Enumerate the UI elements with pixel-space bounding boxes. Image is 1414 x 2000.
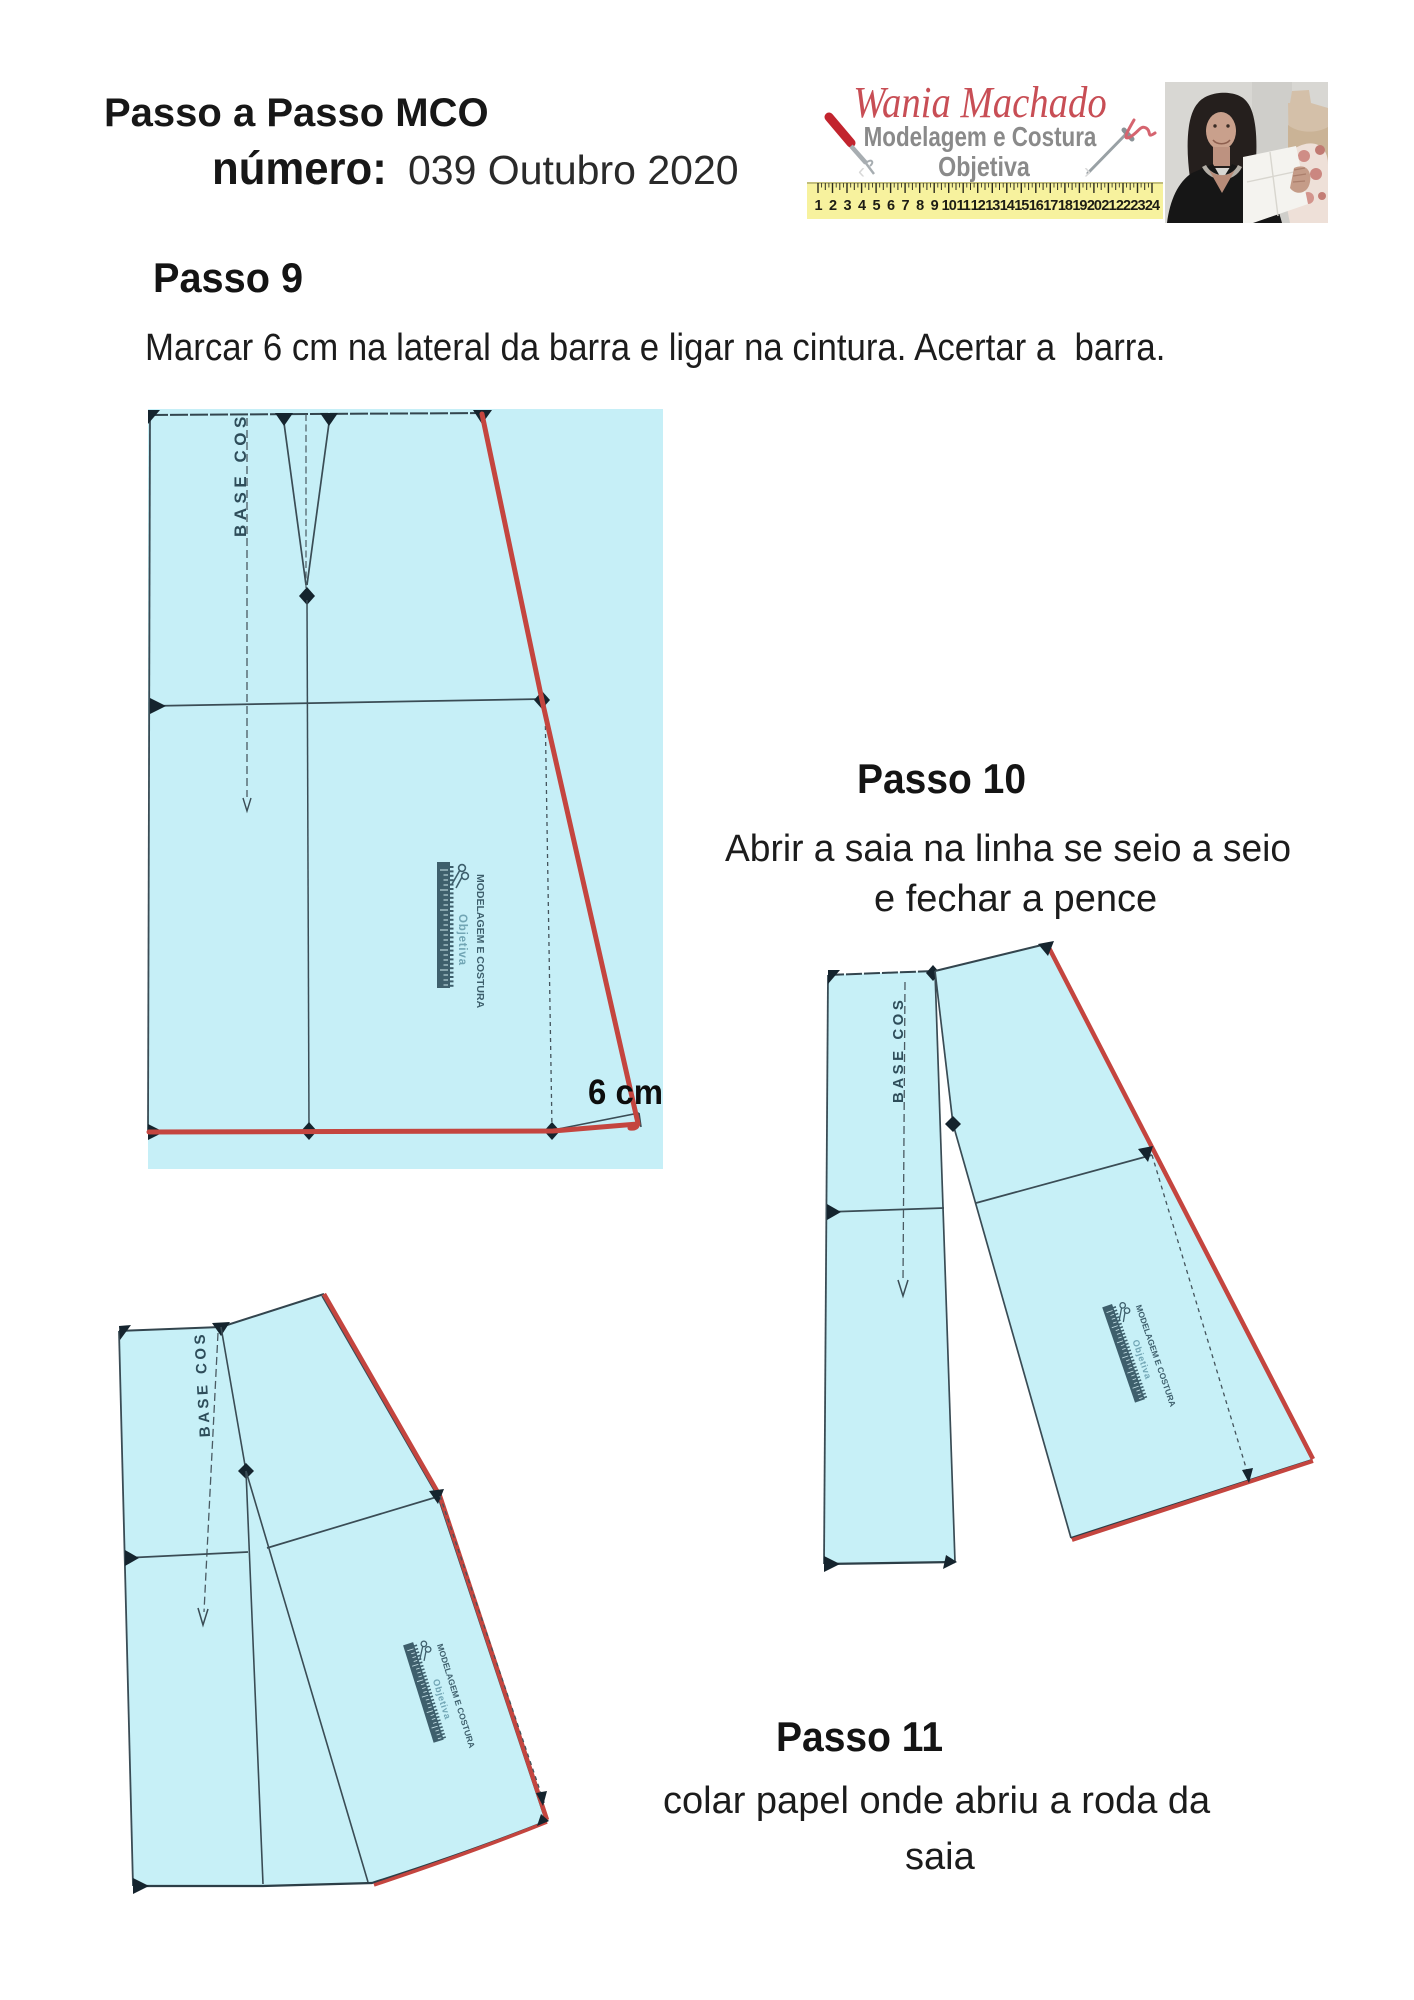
svg-text:19: 19 bbox=[1072, 198, 1087, 214]
svg-text:BASE COS: BASE COS bbox=[231, 412, 250, 537]
svg-text:1: 1 bbox=[814, 198, 822, 214]
svg-text:6: 6 bbox=[887, 198, 895, 214]
svg-text:14: 14 bbox=[1000, 198, 1015, 214]
svg-text:12: 12 bbox=[971, 198, 986, 214]
svg-text:13: 13 bbox=[985, 198, 1000, 214]
svg-text:9: 9 bbox=[931, 198, 939, 214]
svg-text:11: 11 bbox=[957, 198, 971, 214]
svg-text:17: 17 bbox=[1043, 198, 1058, 214]
svg-text:7: 7 bbox=[902, 198, 910, 214]
svg-text:10: 10 bbox=[942, 198, 957, 214]
svg-text:15: 15 bbox=[1014, 198, 1029, 214]
svg-text:21: 21 bbox=[1101, 198, 1116, 214]
svg-text:2: 2 bbox=[829, 198, 837, 214]
svg-text:3: 3 bbox=[843, 198, 851, 214]
svg-text:5: 5 bbox=[873, 198, 881, 214]
svg-text:22: 22 bbox=[1116, 198, 1131, 214]
svg-text:8: 8 bbox=[916, 198, 924, 214]
svg-text:18: 18 bbox=[1058, 198, 1073, 214]
svg-text:BASE COS: BASE COS bbox=[890, 997, 907, 1103]
svg-text:4: 4 bbox=[858, 198, 866, 214]
svg-text:23: 23 bbox=[1130, 198, 1145, 214]
svg-text:16: 16 bbox=[1029, 198, 1044, 214]
svg-text:24: 24 bbox=[1145, 198, 1160, 214]
svg-text:20: 20 bbox=[1087, 198, 1102, 214]
